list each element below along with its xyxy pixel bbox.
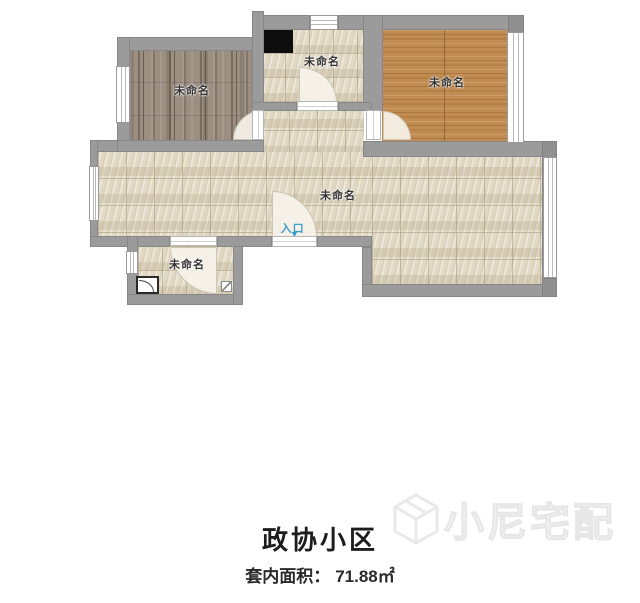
bedroom-right-label: 未命名 [429, 74, 465, 90]
floor-drain-fixture [221, 281, 232, 292]
wall-corner [542, 141, 557, 158]
wall [363, 15, 383, 111]
living-room-floor-right [372, 151, 543, 286]
bathroom-label: 未命名 [169, 256, 205, 272]
entrance-door-leaf [272, 236, 317, 247]
window [89, 166, 99, 221]
door-leaf [297, 101, 338, 111]
area-label: 套内面积： [245, 567, 330, 586]
door-leaf [170, 236, 217, 246]
wall [252, 11, 264, 110]
floorplan-page: { "plan": { "rooms": { "bedroom_left": {… [0, 0, 640, 603]
window [310, 15, 338, 30]
window [507, 32, 524, 143]
kitchen-label: 未命名 [304, 53, 340, 69]
window [116, 66, 130, 123]
living-room-label: 未命名 [320, 187, 356, 203]
interior-area-line: 套内面积：71.88㎡ [0, 562, 640, 587]
wall [233, 246, 243, 305]
shower-curve-glyph [139, 280, 154, 292]
wall [217, 236, 272, 247]
window [543, 157, 557, 278]
bedroom-left-label: 未命名 [174, 82, 210, 98]
wall [117, 37, 264, 51]
community-name-title: 政协小区 [0, 520, 640, 557]
shower-fixture [136, 276, 159, 294]
wall [362, 284, 557, 297]
wall [127, 294, 243, 305]
window [126, 251, 138, 274]
door-leaf [252, 110, 264, 140]
wall-corner [542, 278, 557, 297]
wall [317, 236, 372, 247]
wall [363, 141, 557, 157]
wall [117, 140, 264, 152]
stove-fixture [264, 30, 293, 53]
area-value: 71.88㎡ [335, 567, 395, 586]
door-leaf [366, 110, 381, 140]
